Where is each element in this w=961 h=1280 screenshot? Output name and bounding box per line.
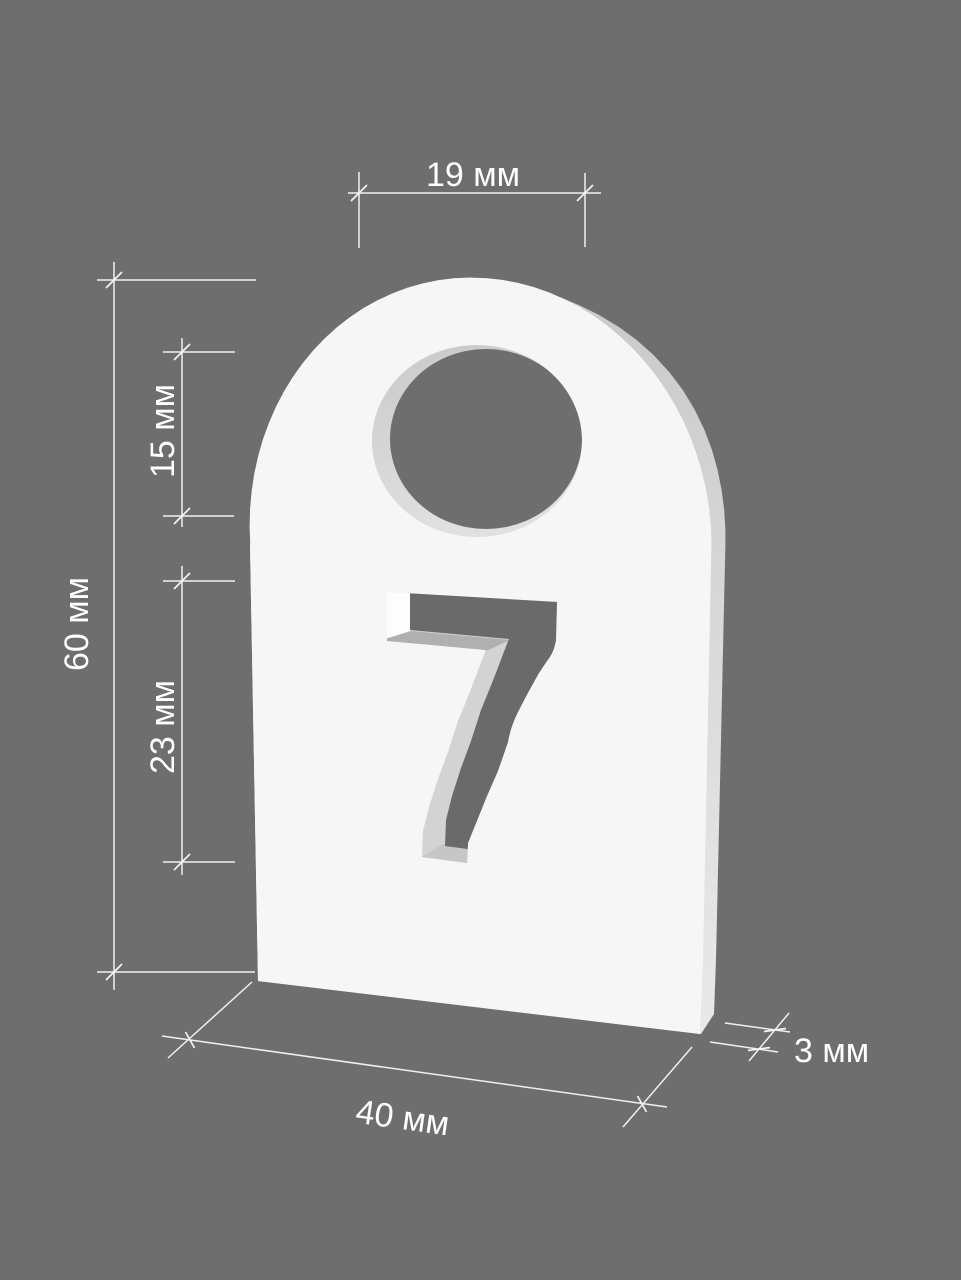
svg-text:23 мм: 23 мм — [144, 680, 182, 774]
svg-text:15 мм: 15 мм — [144, 384, 182, 478]
svg-text:3 мм: 3 мм — [794, 1032, 869, 1070]
svg-text:60 мм: 60 мм — [58, 577, 96, 671]
svg-text:19 мм: 19 мм — [426, 156, 520, 194]
